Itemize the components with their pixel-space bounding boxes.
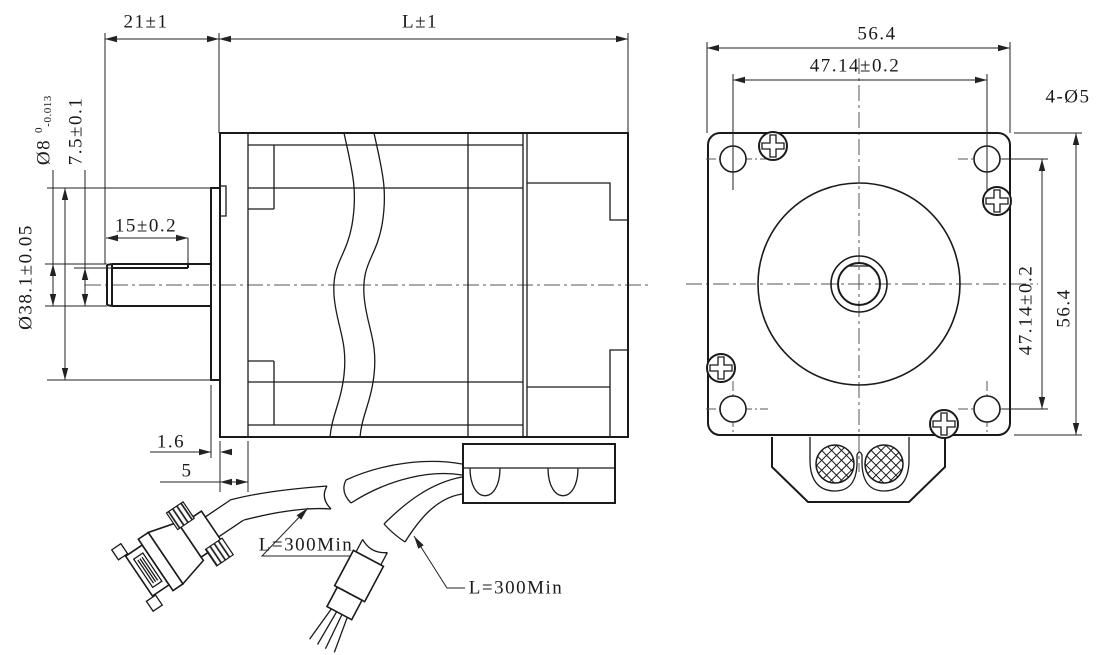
shaft-tip-chamfer	[107, 264, 112, 306]
screw-bottom	[930, 410, 958, 438]
dim-body-length-label: L±1	[402, 12, 438, 33]
dim-shaft-extension-label: 21±1	[124, 12, 169, 33]
terminal-block-outline	[463, 444, 615, 503]
break-line-2	[360, 133, 384, 437]
mounting-holes-callout: 4-Ø5	[1045, 87, 1090, 108]
dim-shaft-lines	[45, 170, 112, 306]
terminal-block-sockets	[470, 468, 578, 496]
connector-pin-right	[865, 445, 903, 483]
dim-pilot-boss-depth-label: 1.6	[157, 432, 185, 453]
dim-L-lines	[219, 33, 628, 133]
front-view-drawing: 56.4 47.14±0.2 4-Ø5 47.14±0.2 56.4	[686, 24, 1091, 503]
rear-cap-notches	[527, 183, 628, 437]
cable-dsub-connector-segment	[230, 486, 331, 520]
side-view-drawing: 21±1 L±1 Ø8 0 -0.013 7.5±0.1 Ø38.1±0.05 …	[16, 12, 653, 655]
dsub-screw-tab-bottom	[146, 595, 162, 611]
dsub-cable-length-label: L=300Min	[259, 535, 354, 556]
dim-shaft-diameter-label: Ø8	[34, 139, 55, 165]
dim-flat-length-lines	[106, 238, 188, 266]
screw-left	[707, 354, 735, 382]
dsub-screw-tab-top	[112, 544, 128, 560]
dim-shaft-flat-height-label: 7.5±0.1	[66, 97, 87, 165]
dim-shaft-diameter-tol-upper: 0	[33, 127, 45, 133]
dim-body-height-label: 56.4	[1054, 288, 1075, 327]
screw-top	[759, 132, 787, 160]
dim-body-width-label: 56.4	[857, 24, 896, 45]
dim-pilot-diameter-label: Ø38.1±0.05	[16, 224, 37, 330]
technical-drawing-canvas: 21±1 L±1 Ø8 0 -0.013 7.5±0.1 Ø38.1±0.05 …	[0, 0, 1108, 655]
dim-shaft-diameter-tol-lower: -0.013	[42, 95, 54, 126]
dim-hole-spacing-h-label: 47.14±0.2	[810, 56, 900, 77]
pilot-boss-outline	[211, 188, 220, 380]
wire-cable-length-label: L=300Min	[469, 578, 564, 599]
mounting-hole-bottom-left	[720, 396, 746, 422]
drawing-svg: 21±1 L±1 Ø8 0 -0.013 7.5±0.1 Ø38.1±0.05 …	[0, 0, 1108, 655]
dim-hole-spacing-v-label: 47.14±0.2	[1016, 265, 1037, 355]
dim-flat-length-label: 15±0.2	[115, 216, 177, 237]
screw-right	[983, 187, 1011, 215]
cable-wires-motor-segment	[384, 477, 462, 542]
mounting-hole-bottom-right	[974, 396, 1000, 422]
dim-front-step-depth-label: 5	[182, 461, 193, 482]
hole-crosshairs	[706, 159, 1002, 433]
connector-pin-left	[816, 445, 854, 483]
